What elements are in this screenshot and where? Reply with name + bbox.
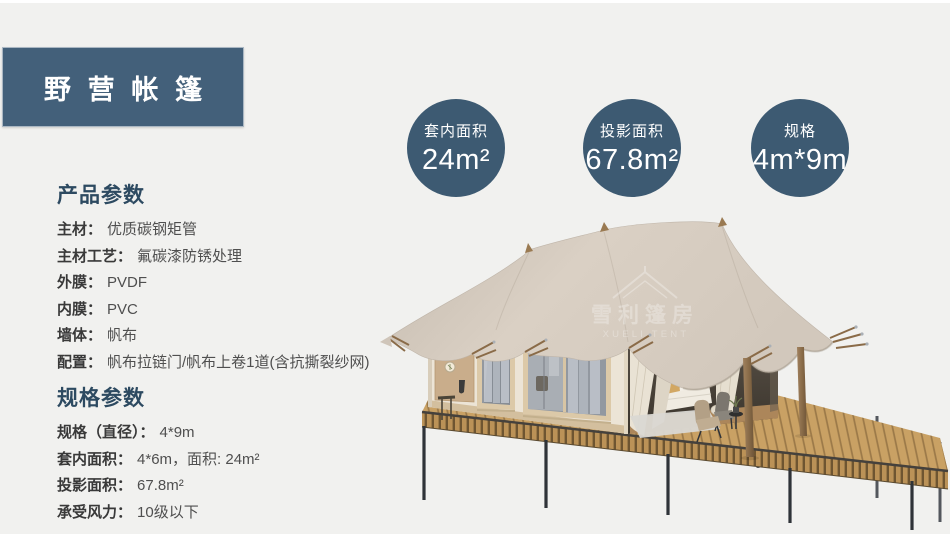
page-title-box: 野营帐篷 <box>2 47 244 127</box>
badge-size-label: 规格 <box>751 120 849 141</box>
product-parameters-title: 产品参数 <box>57 179 370 209</box>
badge-size: 规格 4m*9m <box>751 99 849 197</box>
watermark-cn-text: 雪利篷房 <box>591 303 699 327</box>
spec-row: 规格（直径）：4*9m <box>57 425 260 441</box>
canopy-left-tip-fabric <box>380 336 392 347</box>
page-title: 野营帐篷 <box>27 68 219 107</box>
badge-projection-area-label: 投影面积 <box>583 120 681 141</box>
tent-render-illustration: 雪利篷房 XUELI TENT <box>378 210 950 534</box>
badge-inner-area: 套内面积 24m² <box>407 99 505 197</box>
product-parameters-section: 产品参数 主材：优质碳钢矩管 主材工艺：氟碳漆防锈处理 外膜：PVDF 内膜：P… <box>57 179 370 381</box>
param-row: 外膜：PVDF <box>57 275 370 291</box>
param-row: 墙体：帆布 <box>57 328 370 344</box>
badge-projection-area: 投影面积 67.8m² <box>583 99 681 197</box>
badge-size-value: 4m*9m <box>751 144 849 177</box>
badge-inner-area-value: 24m² <box>407 144 505 177</box>
spec-parameters-section: 规格参数 规格（直径）：4*9m 套内面积：4*6m，面积: 24m² 投影面积… <box>57 382 260 531</box>
param-row: 主材工艺：氟碳漆防锈处理 <box>57 249 370 265</box>
param-row: 配置：帆布拉链门/帆布上卷1道(含抗撕裂纱网) <box>57 355 370 371</box>
spec-parameters-title: 规格参数 <box>57 382 260 412</box>
spec-row: 套内面积：4*6m，面积: 24m² <box>57 452 260 468</box>
badge-projection-area-value: 67.8m² <box>583 144 681 177</box>
watermark-en-text: XUELI TENT <box>603 329 690 340</box>
spec-row: 投影面积：67.8m² <box>57 478 260 494</box>
top-white-strip <box>0 0 950 3</box>
badge-inner-area-label: 套内面积 <box>407 120 505 141</box>
param-row: 主材：优质碳钢矩管 <box>57 222 370 238</box>
param-row: 内膜：PVC <box>57 302 370 318</box>
spec-row: 承受风力：10级以下 <box>57 505 260 521</box>
